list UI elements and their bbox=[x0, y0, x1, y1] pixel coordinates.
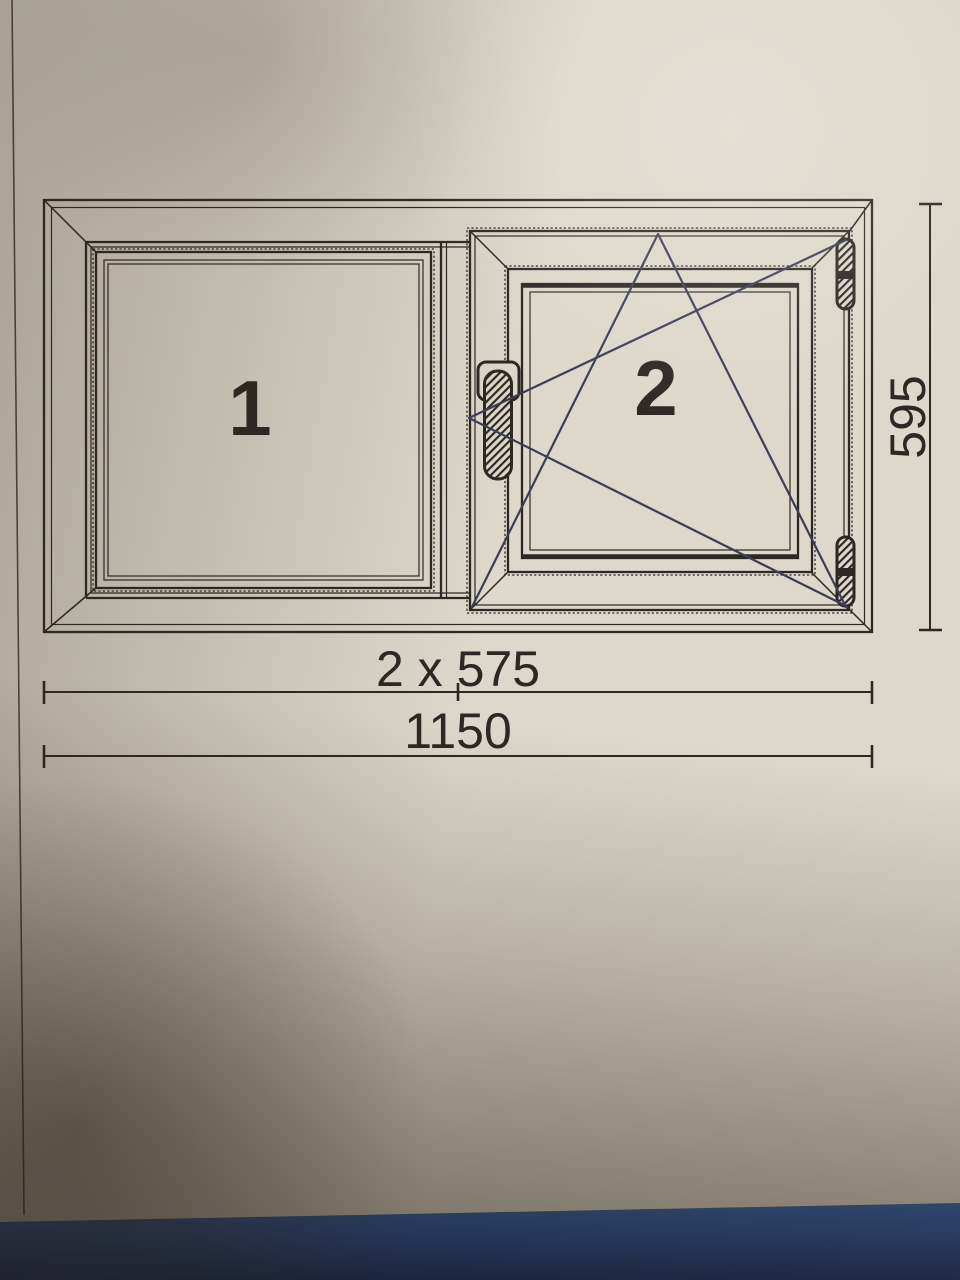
hinge-bottom-band bbox=[836, 568, 855, 576]
pane1-fixed: 1 bbox=[93, 249, 434, 591]
photo-scene: 1 2 bbox=[0, 0, 960, 1280]
dim-halves-label: 2 x 575 bbox=[376, 641, 540, 697]
window-handle bbox=[478, 362, 519, 479]
pane2-label: 2 bbox=[634, 344, 677, 432]
dim-height-label: 595 bbox=[880, 375, 936, 458]
dim-total-label: 1150 bbox=[404, 703, 512, 759]
page-border-line bbox=[12, 0, 24, 1215]
dimension-width-total: 1150 bbox=[44, 703, 872, 768]
outer-frame bbox=[44, 200, 872, 632]
hinge-top bbox=[836, 239, 855, 309]
dimension-height: 595 bbox=[880, 204, 942, 630]
hinge-bottom bbox=[836, 537, 855, 606]
dimension-width-halves: 2 x 575 bbox=[44, 641, 872, 704]
hinge-top-band bbox=[836, 271, 855, 279]
paper-sheet: 1 2 bbox=[0, 0, 960, 1222]
pane2-sash: 2 bbox=[467, 228, 852, 613]
pane1-label: 1 bbox=[228, 364, 271, 452]
handle-grip bbox=[485, 371, 512, 479]
window-drawing: 1 2 bbox=[0, 0, 960, 1222]
frame-opening bbox=[86, 242, 470, 598]
frame-miter-lines bbox=[44, 200, 872, 632]
mullion bbox=[441, 242, 447, 598]
